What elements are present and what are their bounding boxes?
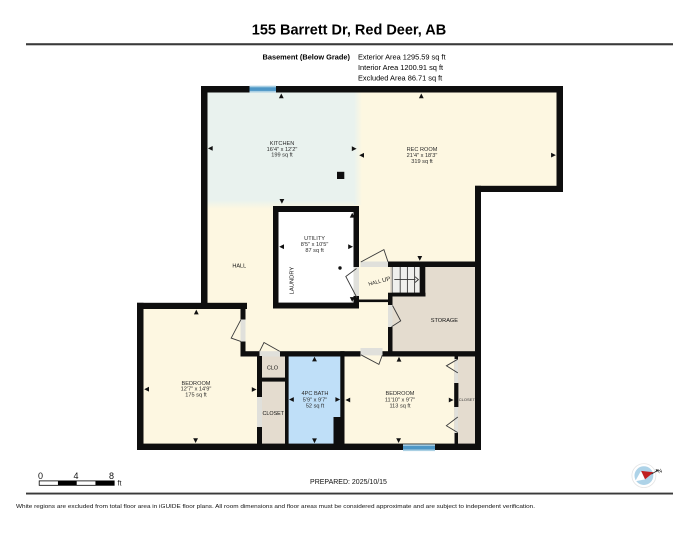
svg-text:175 sq ft: 175 sq ft — [185, 392, 207, 398]
svg-text:LAUNDRY: LAUNDRY — [290, 267, 296, 295]
svg-text:155 Barrett Dr, Red Deer, AB: 155 Barrett Dr, Red Deer, AB — [252, 22, 447, 38]
svg-text:113 sq ft: 113 sq ft — [389, 404, 410, 410]
svg-text:199 sq ft: 199 sq ft — [271, 153, 293, 159]
svg-text:CLOSET: CLOSET — [459, 397, 476, 402]
svg-text:319 sq ft: 319 sq ft — [411, 159, 433, 165]
svg-text:Interior Area 1200.91 sq ft: Interior Area 1200.91 sq ft — [358, 63, 443, 72]
svg-text:8: 8 — [109, 471, 114, 481]
svg-text:PREPARED: 2025/10/15: PREPARED: 2025/10/15 — [310, 479, 387, 486]
svg-text:CLO: CLO — [267, 365, 278, 371]
svg-text:4: 4 — [73, 471, 78, 481]
svg-text:4PC BATH: 4PC BATH — [302, 391, 329, 397]
svg-text:52 sq ft: 52 sq ft — [306, 404, 325, 410]
svg-text:BEDROOM: BEDROOM — [386, 391, 415, 397]
svg-text:HALL: HALL — [232, 263, 246, 269]
svg-text:Excluded Area 86.71 sq ft: Excluded Area 86.71 sq ft — [358, 74, 442, 83]
svg-text:Basement (Below Grade): Basement (Below Grade) — [263, 53, 351, 62]
svg-text:White regions are excluded fro: White regions are excluded from total fl… — [16, 504, 536, 510]
svg-text:UTILITY: UTILITY — [304, 236, 325, 242]
svg-text:ft: ft — [118, 481, 122, 488]
svg-text:Exterior Area 1295.59 sq ft: Exterior Area 1295.59 sq ft — [358, 53, 446, 62]
svg-text:5'9" x 9'7": 5'9" x 9'7" — [303, 397, 327, 403]
svg-text:STORAGE: STORAGE — [431, 318, 459, 324]
svg-text:0: 0 — [38, 471, 43, 481]
svg-text:CLOSET: CLOSET — [263, 411, 285, 417]
svg-text:87 sq ft: 87 sq ft — [305, 248, 324, 254]
svg-text:11'10" x 9'7": 11'10" x 9'7" — [385, 397, 415, 403]
